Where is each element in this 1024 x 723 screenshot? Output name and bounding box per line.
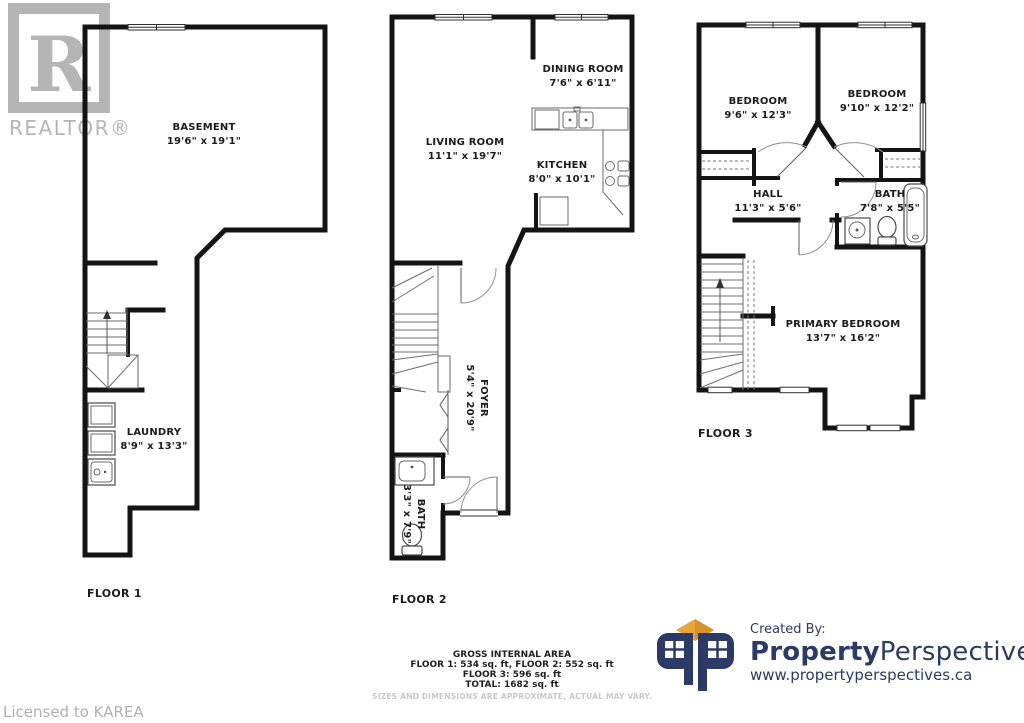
hall-dims: 11'3" x 5'6" bbox=[734, 203, 801, 214]
dining-room-label: DINING ROOM bbox=[542, 64, 623, 75]
gross-internal-area: GROSS INTERNAL AREA FLOOR 1: 534 sq. ft,… bbox=[372, 650, 652, 701]
foyer-label-group: FOYER 5'4" x 20'9" bbox=[464, 364, 489, 431]
area-title: GROSS INTERNAL AREA bbox=[372, 650, 652, 660]
stairs-icon bbox=[392, 266, 450, 392]
property-perspectives-logo-icon bbox=[650, 616, 742, 698]
toilet-icon bbox=[878, 217, 896, 246]
laundry-room-label: LAUNDRY bbox=[127, 427, 182, 438]
dryer-icon bbox=[88, 431, 115, 455]
brand-name-bold: Property bbox=[750, 637, 880, 667]
area-total: TOTAL: 1682 sq. ft bbox=[372, 680, 652, 690]
kitchen-sink-icon bbox=[563, 107, 593, 128]
bedroom2-dims: 9'10" x 12'2" bbox=[840, 103, 914, 114]
foyer-dims: 5'4" x 20'9" bbox=[464, 364, 475, 431]
bathtub-icon bbox=[904, 184, 927, 246]
bedroom2-label: BEDROOM bbox=[848, 89, 907, 100]
floor1-label: FLOOR 1 bbox=[87, 587, 142, 600]
kitchen-label: KITCHEN bbox=[537, 160, 588, 171]
washer-icon bbox=[88, 403, 115, 427]
closet-rail-icon bbox=[702, 159, 920, 169]
front-door-icon bbox=[460, 477, 498, 517]
living-room-window-icon bbox=[435, 15, 492, 21]
bath3-dims: 7'8" x 5'5" bbox=[860, 203, 920, 214]
foyer-label: FOYER bbox=[478, 379, 489, 417]
brand-name: PropertyPerspectives bbox=[750, 637, 1024, 667]
living-room-label: LIVING ROOM bbox=[426, 137, 504, 148]
hall-label: HALL bbox=[753, 189, 783, 200]
bath2-label: BATH bbox=[415, 499, 426, 530]
floor1-walls bbox=[85, 27, 325, 555]
floorplan-page: R REALTOR® bbox=[0, 0, 1024, 723]
laundry-room-dims: 8'9" x 13'3" bbox=[120, 441, 187, 452]
bedroom-double-doors-icon bbox=[758, 143, 883, 177]
bathroom-sink-icon bbox=[845, 218, 870, 244]
dining-room-window-icon bbox=[555, 15, 608, 21]
stairs-up-arrow-icon bbox=[103, 310, 111, 319]
created-by-text: Created By: bbox=[750, 622, 1024, 637]
living-room-dims: 11'1" x 19'7" bbox=[428, 151, 502, 162]
primary-bedroom-dims: 13'7" x 16'2" bbox=[806, 333, 880, 344]
stairs-icon bbox=[700, 258, 743, 390]
stair-railing bbox=[748, 260, 754, 390]
bath-door-icon bbox=[443, 477, 470, 504]
kitchen-island-cabinet bbox=[540, 197, 568, 225]
basement-window-icon bbox=[128, 25, 185, 31]
area-floor3: FLOOR 3: 596 sq. ft bbox=[372, 670, 652, 680]
vanity-sink-icon bbox=[395, 457, 434, 485]
bedroom2-side-window-icon bbox=[920, 103, 926, 151]
floor3-plan: BEDROOM 9'6" x 12'3" BEDROOM 9'10" x 12'… bbox=[691, 18, 943, 450]
stove-icon bbox=[606, 161, 630, 186]
realtor-logo-letter: R bbox=[27, 20, 91, 109]
brand-name-regular: Perspectives bbox=[880, 637, 1024, 667]
floor1-plan: BASEMENT 19'6" x 19'1" LAUNDRY 8'9" x 13… bbox=[83, 24, 333, 604]
floor3-label: FLOOR 3 bbox=[698, 427, 753, 440]
brand-url: www.propertyperspectives.ca bbox=[750, 667, 1024, 684]
stairs-icon bbox=[86, 308, 138, 388]
primary-bedroom-label: PRIMARY BEDROOM bbox=[786, 319, 901, 330]
floor2-plan: LIVING ROOM 11'1" x 19'7" DINING ROOM 7'… bbox=[386, 14, 648, 614]
branding-block: Created By: PropertyPerspectives www.pro… bbox=[750, 622, 1024, 684]
landing-door-icon bbox=[461, 268, 496, 303]
logo-left-p bbox=[657, 633, 693, 685]
bedroom1-label: BEDROOM bbox=[729, 96, 788, 107]
logo-right-p bbox=[698, 633, 734, 691]
bath3-label: BATH bbox=[875, 189, 906, 200]
area-disclaimer: SIZES AND DIMENSIONS ARE APPROXIMATE, AC… bbox=[372, 692, 652, 701]
laundry-sink-icon bbox=[88, 459, 115, 485]
closet-bifold-icon bbox=[440, 390, 448, 455]
basement-room-label: BASEMENT bbox=[173, 122, 236, 133]
area-floor12: FLOOR 1: 534 sq. ft, FLOOR 2: 552 sq. ft bbox=[372, 660, 652, 670]
bedroom1-dims: 9'6" x 12'3" bbox=[724, 110, 791, 121]
bedroom2-window-icon bbox=[858, 22, 912, 28]
license-text: Licensed to KAREA bbox=[3, 703, 144, 721]
bedroom1-window-icon bbox=[746, 22, 800, 28]
primary-bedroom-door-icon bbox=[799, 220, 833, 255]
bath2-dims: 3'3" x 7'9" bbox=[401, 484, 412, 544]
basement-room-dims: 19'6" x 19'1" bbox=[167, 136, 241, 147]
dining-room-dims: 7'6" x 6'11" bbox=[549, 78, 616, 89]
floor2-label: FLOOR 2 bbox=[392, 593, 447, 606]
kitchen-dims: 8'0" x 10'1" bbox=[528, 174, 595, 185]
